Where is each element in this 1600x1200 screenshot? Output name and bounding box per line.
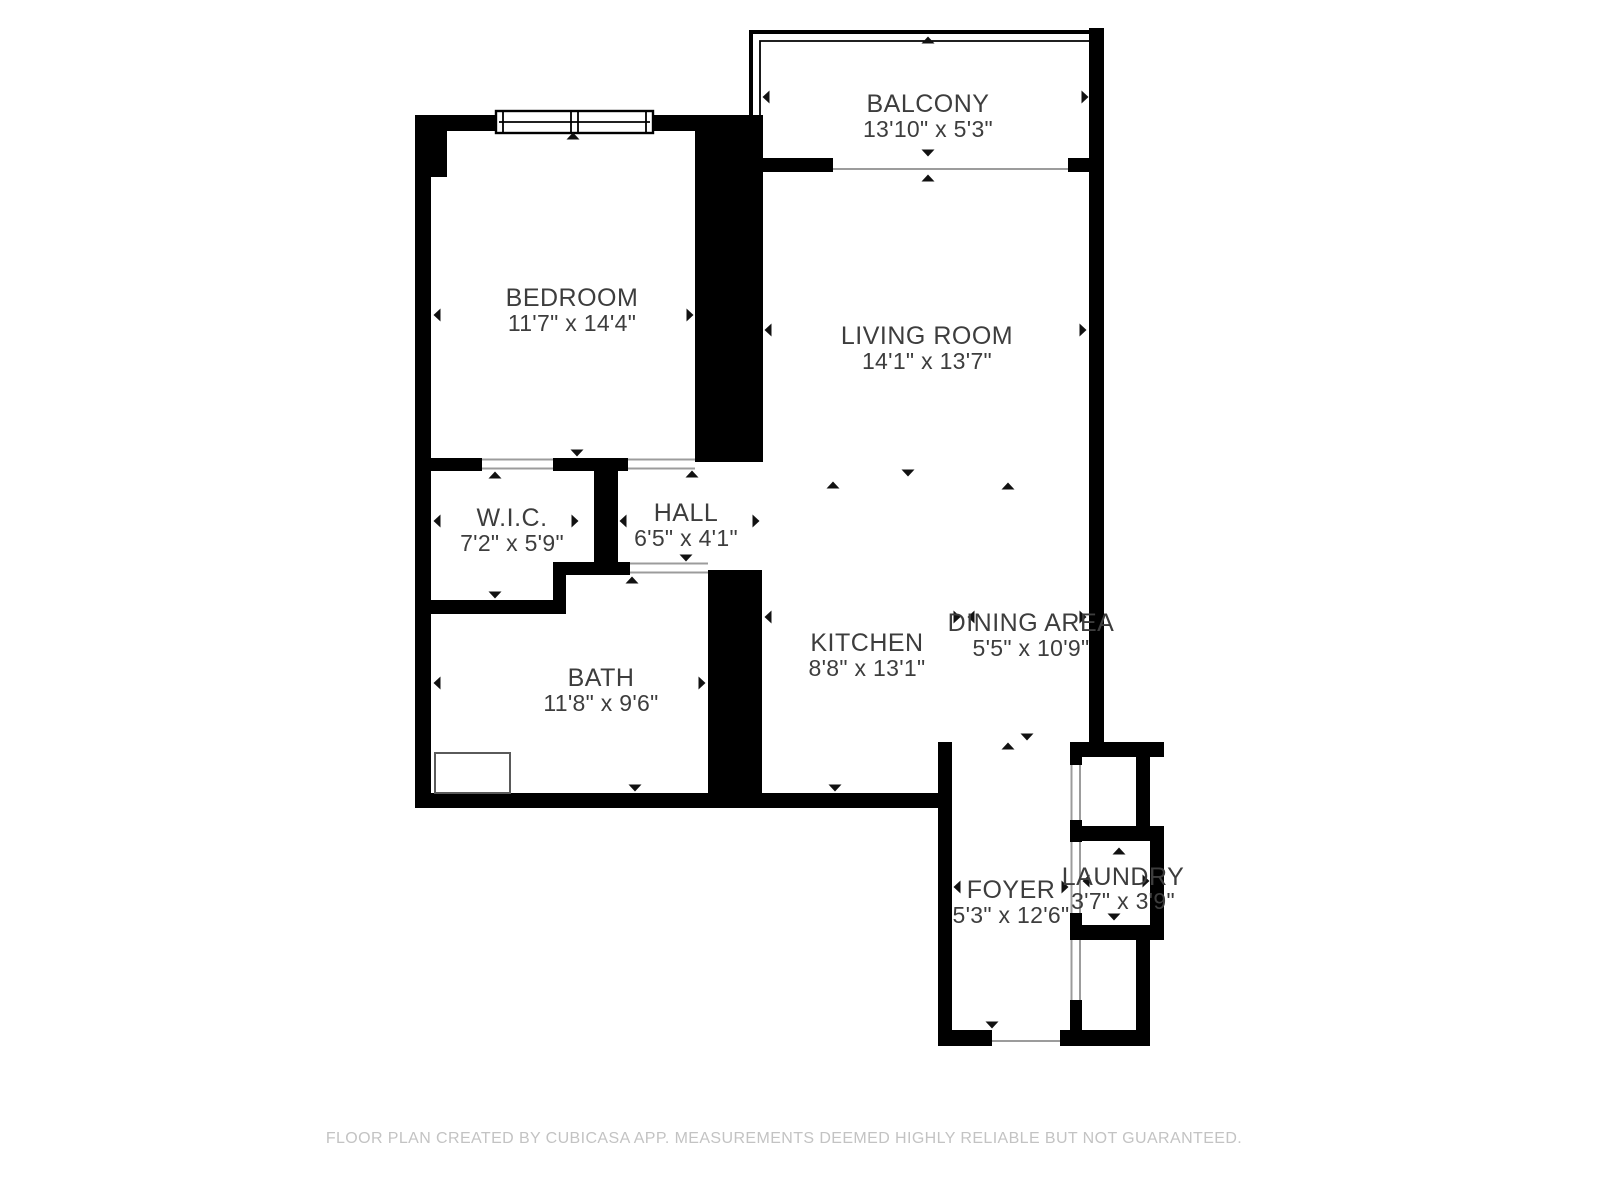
arrow-right-icon: [753, 515, 760, 528]
arrow-left-icon: [763, 91, 770, 104]
room-label-bedroom: BEDROOM 11'7" x 14'4": [506, 284, 639, 336]
room-name: LAUNDRY: [1062, 863, 1185, 891]
room-dimensions: 3'7" x 3'9": [1071, 888, 1175, 914]
bath-fixture-outline: [435, 753, 510, 793]
arrow-right-icon: [699, 677, 706, 690]
room-name: BATH: [568, 664, 635, 692]
arrow-down-icon: [902, 470, 915, 477]
arrow-up-icon: [1113, 848, 1126, 855]
room-label-wic: W.I.C. 7'2" x 5'9": [460, 504, 564, 556]
arrow-down-icon: [829, 785, 842, 792]
arrow-up-icon: [489, 472, 502, 479]
room-dimensions: 13'10" x 5'3": [863, 116, 993, 142]
arrow-right-icon: [572, 515, 579, 528]
room-label-foyer: FOYER 5'3" x 12'6": [953, 876, 1070, 928]
arrow-right-icon: [687, 309, 694, 322]
arrow-up-icon: [686, 471, 699, 478]
floor-plan-svg: BALCONY 13'10" x 5'3" BEDROOM 11'7" x 14…: [0, 0, 1600, 1200]
room-label-kitchen: KITCHEN 8'8" x 13'1": [809, 629, 926, 681]
arrow-down-icon: [489, 592, 502, 599]
room-dimensions: 5'5" x 10'9": [973, 635, 1090, 661]
room-name: LIVING ROOM: [841, 322, 1013, 350]
arrow-up-icon: [827, 482, 840, 489]
footer-disclaimer: FLOOR PLAN CREATED BY CUBICASA APP. MEAS…: [326, 1130, 1242, 1147]
arrow-down-icon: [1021, 734, 1034, 741]
arrow-left-icon: [434, 309, 441, 322]
arrow-right-icon: [1082, 91, 1089, 104]
room-name: W.I.C.: [476, 504, 547, 532]
room-label-bath: BATH 11'8" x 9'6": [543, 664, 658, 716]
room-label-living-room: LIVING ROOM 14'1" x 13'7": [841, 322, 1013, 374]
room-dimensions: 8'8" x 13'1": [809, 655, 926, 681]
room-name: KITCHEN: [810, 629, 923, 657]
room-label-hall: HALL 6'5" x 4'1": [634, 499, 738, 551]
arrow-down-icon: [629, 785, 642, 792]
room-name: BALCONY: [867, 90, 990, 118]
arrow-down-icon: [1108, 914, 1121, 921]
arrow-down-icon: [680, 555, 693, 562]
arrow-left-icon: [620, 515, 627, 528]
arrow-down-icon: [986, 1022, 999, 1029]
arrow-up-icon: [922, 37, 935, 44]
room-name: HALL: [654, 499, 719, 527]
room-label-dining-area: DINING AREA 5'5" x 10'9": [948, 609, 1115, 661]
arrow-right-icon: [1080, 324, 1087, 337]
room-name: FOYER: [967, 876, 1056, 904]
room-dimensions: 6'5" x 4'1": [634, 525, 738, 551]
window-symbol: [496, 111, 653, 133]
arrow-left-icon: [434, 677, 441, 690]
arrow-down-icon: [571, 450, 584, 457]
room-label-balcony: BALCONY 13'10" x 5'3": [863, 90, 993, 142]
arrow-up-icon: [1002, 483, 1015, 490]
arrow-left-icon: [954, 881, 961, 894]
arrow-up-icon: [626, 577, 639, 584]
arrow-left-icon: [765, 611, 772, 624]
room-name: DINING AREA: [948, 609, 1115, 637]
arrow-down-icon: [922, 150, 935, 157]
floor-plan-page: BALCONY 13'10" x 5'3" BEDROOM 11'7" x 14…: [0, 0, 1600, 1200]
arrow-up-icon: [922, 175, 935, 182]
room-dimensions: 14'1" x 13'7": [862, 348, 992, 374]
room-dimensions: 11'7" x 14'4": [508, 310, 636, 336]
room-dimensions: 11'8" x 9'6": [543, 690, 658, 716]
arrow-up-icon: [1002, 743, 1015, 750]
arrow-left-icon: [765, 324, 772, 337]
arrow-left-icon: [434, 515, 441, 528]
room-name: BEDROOM: [506, 284, 639, 312]
room-label-laundry: LAUNDRY 3'7" x 3'9": [1062, 863, 1185, 914]
room-dimensions: 7'2" x 5'9": [460, 530, 564, 556]
room-dimensions: 5'3" x 12'6": [953, 902, 1070, 928]
